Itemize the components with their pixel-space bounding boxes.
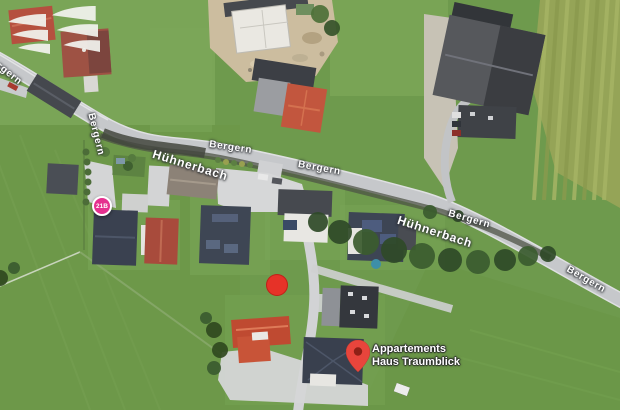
poi-label-line2: Haus Traumblick [372, 356, 460, 369]
pink-circle-badge[interactable]: 21B [92, 196, 112, 216]
pink-badge-label: 21B [96, 203, 108, 210]
map-pin-icon[interactable] [346, 340, 370, 372]
poi-marker-haus-traumblick[interactable]: Appartements Haus Traumblick [346, 340, 506, 380]
red-dot-marker[interactable] [266, 274, 288, 296]
poi-label-line1: Appartements [372, 343, 460, 356]
satellite-map-viewport[interactable]: Bergern Bergern Bergern Bergern Bergern … [0, 0, 620, 410]
